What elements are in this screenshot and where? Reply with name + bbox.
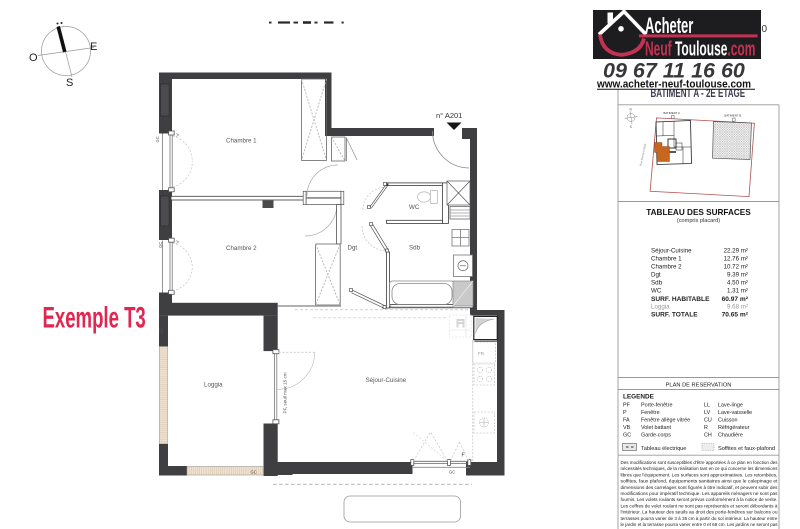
svg-text:Acheter: Acheter <box>645 14 693 38</box>
svg-text:LL: LL <box>704 403 710 409</box>
svg-text:FA: FA <box>623 418 630 424</box>
svg-text:(compris placard): (compris placard) <box>677 218 720 224</box>
svg-text:Les coffres de volet roulant n: Les coffres de volet roulant ne sont pas… <box>621 503 779 508</box>
svg-text:terrasses pourra varier de 3 à: terrasses pourra varier de 3 à 35 cm à p… <box>621 516 779 521</box>
svg-text:GC: GC <box>449 470 455 475</box>
svg-text:libres que l'équipement. Les s: libres que l'équipement. Les surfaces so… <box>621 472 778 477</box>
svg-text:Exemple T3: Exemple T3 <box>43 302 146 334</box>
svg-text:le jardin et la terrasse pourr: le jardin et la terrasse pourra varier e… <box>621 522 779 527</box>
svg-text:n° A201: n° A201 <box>436 111 462 120</box>
svg-text:Dgt: Dgt <box>651 272 661 279</box>
svg-text:Soffites et faux-plafond: Soffites et faux-plafond <box>718 446 775 452</box>
svg-text:S: S <box>66 77 73 89</box>
svg-text:1.31 m²: 1.31 m² <box>727 288 748 295</box>
svg-text:Séjour-Cuisine: Séjour-Cuisine <box>366 377 407 384</box>
svg-text:FR.: FR. <box>478 351 485 356</box>
svg-text:Chambre 2: Chambre 2 <box>226 245 257 252</box>
svg-text:soffites, faux plafond, équipe: soffites, faux plafond, équipements sani… <box>621 479 779 484</box>
svg-text:Dgt: Dgt <box>348 245 358 252</box>
svg-text:F: F <box>462 453 465 459</box>
svg-text:4.50 m²: 4.50 m² <box>727 280 748 287</box>
svg-text:Loggia: Loggia <box>204 382 223 389</box>
svg-text:dimensions des carrelages sont: dimensions des carrelages sont figurés à… <box>621 485 779 490</box>
svg-text:P: P <box>623 410 627 416</box>
svg-text:GC: GC <box>159 328 164 334</box>
svg-text:Sdb: Sdb <box>409 245 421 252</box>
svg-text:Chambre 1: Chambre 1 <box>226 138 257 145</box>
svg-text:Tableau électrique: Tableau électrique <box>641 446 686 452</box>
svg-text:Séjour-Cuisine: Séjour-Cuisine <box>651 248 692 255</box>
svg-text:PF: PF <box>623 403 631 409</box>
svg-text:GC: GC <box>158 242 163 248</box>
svg-text:Chambre 1: Chambre 1 <box>651 256 682 263</box>
svg-text:CU: CU <box>704 418 712 424</box>
svg-text:Neuf Toulouse.com: Neuf Toulouse.com <box>645 39 755 61</box>
svg-text:Loggia: Loggia <box>651 304 670 311</box>
svg-text:SURF. TOTALE: SURF. TOTALE <box>651 312 698 319</box>
svg-text:Chambre 2: Chambre 2 <box>651 264 682 271</box>
svg-text:nécessités techniques, de la r: nécessités techniques, de la réalisation… <box>621 466 779 471</box>
svg-text:9.39 m²: 9.39 m² <box>727 272 748 279</box>
svg-text:VB: VB <box>623 425 631 431</box>
svg-text:WC: WC <box>651 288 662 295</box>
svg-text:70.65 m²: 70.65 m² <box>722 312 749 319</box>
svg-text:CH: CH <box>704 433 712 439</box>
svg-text:l'intérieur. La hauteur des se: l'intérieur. La hauteur des seuils au dr… <box>621 510 779 515</box>
svg-text:BATIMENT A: BATIMENT A <box>664 111 681 115</box>
svg-text:S: S <box>630 125 632 129</box>
svg-text:PLAN DE RESERVATION: PLAN DE RESERVATION <box>666 382 732 388</box>
svg-text:GC: GC <box>155 136 160 142</box>
svg-text:GC: GC <box>623 433 631 439</box>
svg-text:www.acheter-neuf-toulouse.com: www.acheter-neuf-toulouse.com <box>596 78 751 91</box>
svg-text:10.72 m²: 10.72 m² <box>724 264 748 271</box>
svg-text:Volet battant: Volet battant <box>641 425 671 431</box>
svg-text:Chaudière: Chaudière <box>718 433 743 439</box>
svg-text:R: R <box>704 425 708 431</box>
svg-text:WC: WC <box>409 204 420 211</box>
svg-text:Des modifications sont suscept: Des modifications sont susceptibles d'êt… <box>621 460 779 465</box>
svg-text:Porte-fenêtre: Porte-fenêtre <box>641 403 672 409</box>
svg-text:GC: GC <box>251 470 257 475</box>
svg-text:Réfrigérateur: Réfrigérateur <box>718 425 750 431</box>
svg-text:Lave-linge: Lave-linge <box>718 403 743 409</box>
svg-text:22.29 m²: 22.29 m² <box>724 248 748 255</box>
svg-text:O: O <box>29 52 38 64</box>
svg-text:Sdb: Sdb <box>651 280 663 287</box>
svg-text:LV: LV <box>704 410 711 416</box>
svg-text:SURF. HABITABLE: SURF. HABITABLE <box>651 296 710 303</box>
svg-text:Garde-corps: Garde-corps <box>641 433 671 439</box>
svg-text:Cuisson: Cuisson <box>718 418 737 424</box>
svg-text:Fenêtre allège vitrée: Fenêtre allège vitrée <box>641 418 690 424</box>
svg-text:0: 0 <box>762 24 768 35</box>
svg-text:PF, seuil max 15 cm: PF, seuil max 15 cm <box>283 372 288 413</box>
svg-text:fournis. Les volets roulants s: fournis. Les volets roulants seront prév… <box>621 497 778 502</box>
svg-text:modifications pour impératif t: modifications pour impératif technique. … <box>621 491 779 496</box>
svg-text:BATIMENT B: BATIMENT B <box>725 114 742 118</box>
svg-text:E: E <box>90 41 97 53</box>
svg-text:Fenêtre: Fenêtre <box>641 410 660 416</box>
svg-text:60.97 m²: 60.97 m² <box>722 296 749 303</box>
svg-text:TABLEAU DES SURFACES: TABLEAU DES SURFACES <box>646 208 751 217</box>
svg-text:LEGENDE: LEGENDE <box>623 394 655 401</box>
svg-text:9.68 m²: 9.68 m² <box>727 304 748 311</box>
svg-text:12.76 m²: 12.76 m² <box>724 256 748 263</box>
svg-text:Lave-vaisselle: Lave-vaisselle <box>718 410 752 416</box>
